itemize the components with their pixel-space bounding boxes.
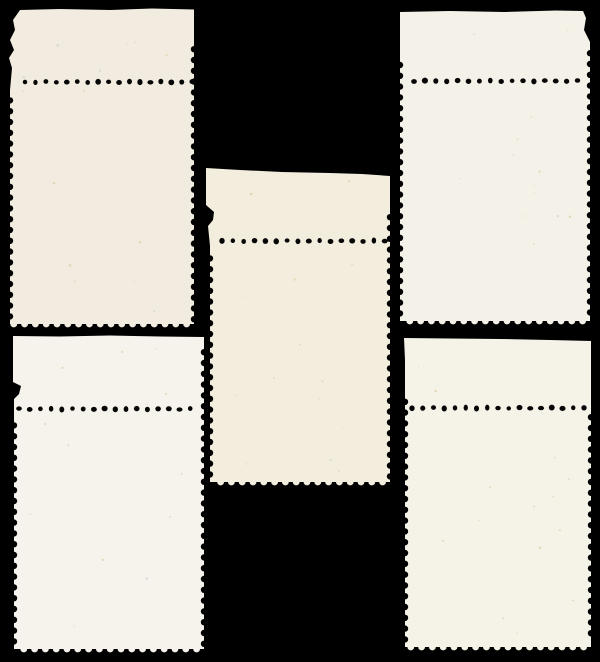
perforation-dot	[124, 406, 129, 412]
perforation-dot	[285, 238, 290, 242]
stamp-bottom-left	[13, 336, 204, 653]
stamp-scan-scene	[0, 0, 600, 662]
paper-speck	[99, 70, 101, 72]
perforation-dot	[64, 80, 70, 85]
perforation-dot	[498, 79, 503, 84]
paper-speck	[61, 367, 63, 369]
perforation-dot	[137, 79, 142, 85]
paper-speck	[74, 281, 76, 283]
perforation-dot	[70, 406, 75, 410]
stamp-middle	[206, 168, 390, 485]
perforation-dot	[106, 80, 111, 84]
stamp-bottom-right	[404, 338, 591, 650]
paper-speck	[165, 393, 167, 395]
perforation-dot	[145, 407, 150, 413]
perforation-dot	[16, 406, 22, 410]
perforation-dot	[252, 238, 258, 243]
perforation-dot	[571, 405, 575, 410]
perforation-dot	[409, 405, 414, 411]
perforation-dot	[166, 406, 172, 411]
stamp-top-right-paper	[400, 11, 590, 325]
perforation-dot	[49, 406, 53, 412]
paper-speck	[516, 632, 517, 633]
perforation-dot	[411, 79, 417, 84]
paper-speck	[153, 310, 155, 312]
perforation-dot	[189, 79, 194, 84]
paper-speck	[294, 278, 296, 280]
paper-speck	[351, 263, 353, 265]
paper-speck	[102, 559, 104, 561]
perforation-dot	[466, 79, 472, 84]
perforation-dot	[474, 405, 479, 411]
paper-speck	[29, 513, 31, 515]
perforation-dot	[263, 238, 269, 244]
paper-speck	[342, 428, 343, 429]
paper-speck	[155, 348, 157, 350]
perforation-dot	[422, 78, 428, 84]
perforation-dot	[155, 406, 161, 411]
paper-speck	[22, 90, 24, 92]
paper-speck	[165, 54, 167, 56]
perforation-dot	[453, 405, 458, 410]
paper-speck	[473, 34, 475, 36]
paper-speck	[531, 116, 532, 117]
perforation-dot	[158, 79, 163, 85]
paper-speck	[567, 29, 569, 31]
perforation-dot	[520, 78, 526, 83]
paper-speck	[114, 446, 115, 447]
perforation-dot	[81, 407, 86, 412]
paper-speck	[273, 377, 275, 379]
perforation-dot	[527, 406, 533, 410]
perforation-dot	[231, 238, 235, 243]
perforation-dot	[477, 79, 482, 84]
paper-speck	[322, 381, 324, 383]
perforation-dot	[488, 78, 493, 84]
paper-speck	[534, 192, 535, 193]
perforation-dot	[23, 80, 27, 85]
paper-speck	[146, 404, 148, 406]
paper-speck	[533, 186, 534, 187]
perforation-dot	[431, 405, 436, 410]
perforation-dot	[339, 239, 345, 244]
perforation-dot	[241, 239, 246, 244]
perforation-dot	[542, 78, 548, 83]
paper-speck	[512, 154, 513, 155]
paper-speck	[434, 66, 435, 67]
perforation-dot	[134, 406, 140, 411]
perforation-dot	[372, 238, 376, 244]
perforation-dot	[581, 405, 586, 410]
perforation-dot	[75, 79, 80, 84]
paper-speck	[246, 463, 248, 465]
paper-speck	[133, 281, 134, 282]
perforation-dot	[564, 79, 569, 84]
paper-speck	[139, 241, 141, 243]
paper-speck	[569, 216, 571, 218]
perforation-dot	[559, 406, 565, 411]
paper-speck	[69, 264, 71, 266]
perforation-dot	[553, 79, 559, 84]
paper-speck	[533, 505, 535, 507]
paper-speck	[557, 215, 560, 218]
stamp-bottom-left-paper	[13, 336, 204, 653]
paper-speck	[502, 617, 504, 619]
paper-speck	[539, 547, 541, 549]
perforation-dot	[95, 79, 101, 85]
perforation-dot	[360, 239, 365, 244]
paper-speck	[83, 90, 85, 92]
perforation-dot	[168, 79, 174, 85]
perforation-dot	[507, 406, 511, 410]
paper-speck	[330, 459, 332, 461]
paper-speck	[559, 529, 561, 531]
perforation-dot	[179, 79, 184, 84]
paper-speck	[489, 486, 491, 488]
stamp-top-left-paper	[9, 9, 194, 328]
perforation-dot	[85, 80, 90, 85]
perforation-dot	[147, 80, 153, 84]
perforation-dot	[433, 78, 438, 84]
perforation-dot	[517, 405, 523, 410]
paper-speck	[121, 351, 124, 354]
paper-speck	[73, 626, 74, 627]
perforation-dot	[442, 405, 447, 411]
perforation-dot	[455, 78, 461, 83]
perforation-dot	[444, 79, 449, 85]
perforation-dot	[116, 80, 122, 85]
paper-speck	[568, 478, 570, 480]
paper-speck	[478, 520, 479, 521]
perforation-dot	[54, 80, 59, 84]
paper-speck	[235, 395, 236, 396]
perforation-dot	[113, 406, 118, 412]
paper-speck	[134, 42, 135, 43]
paper-speck	[539, 171, 541, 173]
paper-speck	[525, 215, 526, 216]
stamp-top-right	[400, 11, 590, 325]
stamp-middle-paper	[206, 168, 390, 485]
perforation-dot	[274, 238, 280, 244]
perforation-dot	[38, 407, 43, 412]
perforation-dot	[349, 238, 355, 243]
paper-speck	[442, 540, 444, 542]
perforation-dot	[549, 405, 555, 411]
perforation-dot	[59, 406, 64, 412]
perforation-dot	[382, 239, 388, 244]
perforation-dot	[510, 79, 515, 83]
perforation-dot	[127, 79, 132, 85]
perforation-dot	[91, 407, 97, 412]
paper-speck	[169, 516, 171, 518]
perforation-dot	[531, 79, 536, 85]
paper-speck	[23, 76, 25, 78]
paper-speck	[348, 180, 350, 182]
paper-speck	[53, 182, 55, 184]
perforation-dot	[575, 78, 580, 82]
paper-speck	[250, 193, 252, 195]
perforation-dot	[102, 406, 108, 412]
perforation-dot	[306, 239, 312, 244]
paper-speck	[459, 178, 460, 179]
perforation-dot	[464, 405, 468, 411]
paper-speck	[145, 577, 148, 580]
paper-speck	[127, 44, 128, 45]
stamp-bottom-right-paper	[404, 338, 591, 650]
paper-speck	[56, 44, 59, 47]
perforation-dot	[317, 238, 321, 243]
perforation-dot	[328, 239, 334, 244]
paper-speck	[554, 457, 556, 459]
perforation-dot	[485, 405, 489, 411]
paper-speck	[67, 444, 69, 446]
paper-speck	[533, 243, 535, 245]
paper-speck	[299, 344, 300, 345]
paper-speck	[338, 470, 340, 472]
paper-speck	[242, 296, 243, 297]
perforation-dot	[420, 406, 425, 411]
paper-speck	[434, 390, 436, 392]
paper-speck	[517, 138, 519, 140]
paper-speck	[552, 496, 554, 498]
paper-speck	[572, 600, 574, 602]
perforation-dot	[295, 239, 300, 245]
perforation-dot	[27, 407, 33, 412]
perforation-dot	[495, 406, 501, 410]
stamp-top-left	[9, 9, 195, 328]
perforation-dot	[33, 80, 37, 85]
perforation-dot	[538, 406, 544, 410]
stamps-image	[0, 0, 600, 662]
paper-speck	[181, 473, 183, 475]
paper-speck	[418, 366, 419, 367]
perforation-dot	[43, 79, 48, 84]
paper-speck	[44, 423, 46, 425]
perforation-dot	[188, 406, 193, 411]
perforation-dot	[177, 407, 183, 411]
perforation-dot	[219, 238, 224, 244]
paper-speck	[318, 398, 320, 400]
